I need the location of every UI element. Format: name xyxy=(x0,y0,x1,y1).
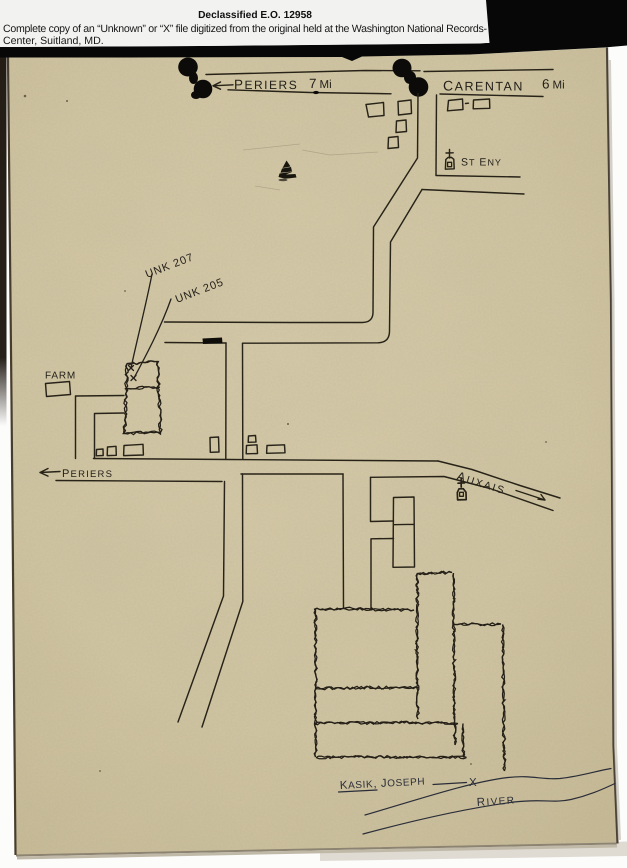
svg-text:PERIERS: PERIERS xyxy=(62,468,113,480)
svg-text:Complete copy of an “Unknown”: Complete copy of an “Unknown” or “X” fil… xyxy=(3,23,487,35)
svg-text:7Mi: 7Mi xyxy=(309,76,332,91)
svg-text:Declassified E.O. 12958: Declassified E.O. 12958 xyxy=(198,10,312,21)
svg-text:PERIERS: PERIERS xyxy=(234,77,298,92)
svg-text:6Mi: 6Mi xyxy=(542,77,565,92)
svg-text:CARENTAN: CARENTAN xyxy=(443,78,524,94)
svg-text:Center, Suitland, MD.: Center, Suitland, MD. xyxy=(3,35,104,47)
svg-text:ST ENY: ST ENY xyxy=(461,157,502,169)
svg-text:FARM: FARM xyxy=(45,371,76,382)
